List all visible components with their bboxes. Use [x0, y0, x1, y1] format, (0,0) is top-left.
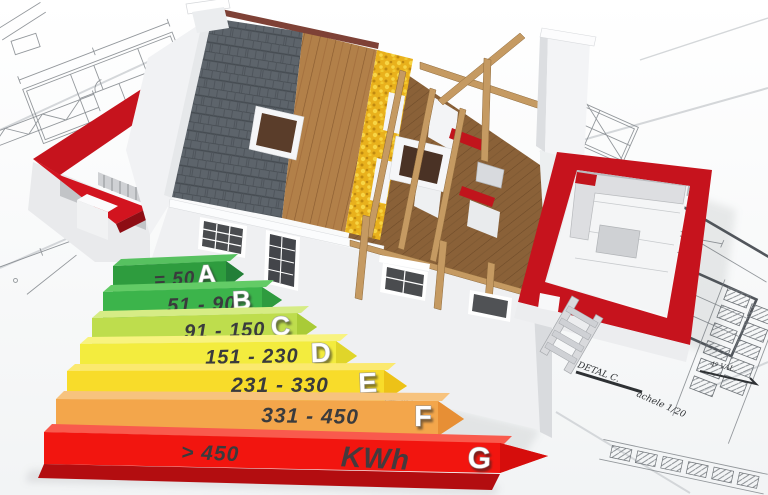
bar-top-face	[67, 363, 396, 371]
grade-range-g: > 450	[181, 441, 240, 466]
illustration-canvas: DETAL C. achele 1/20 4º VAL. = 50 A 51 -…	[0, 0, 768, 495]
grade-letter-g: G	[467, 442, 491, 476]
kwh-unit-label: KWh	[340, 441, 411, 477]
kitchen-island	[596, 225, 640, 258]
tower-front	[545, 33, 590, 162]
grade-range-f: 331 - 450	[261, 404, 359, 429]
grade-letter-f: F	[414, 401, 432, 433]
scene: DETAL C. achele 1/20 4º VAL. = 50 A 51 -…	[0, 0, 768, 495]
